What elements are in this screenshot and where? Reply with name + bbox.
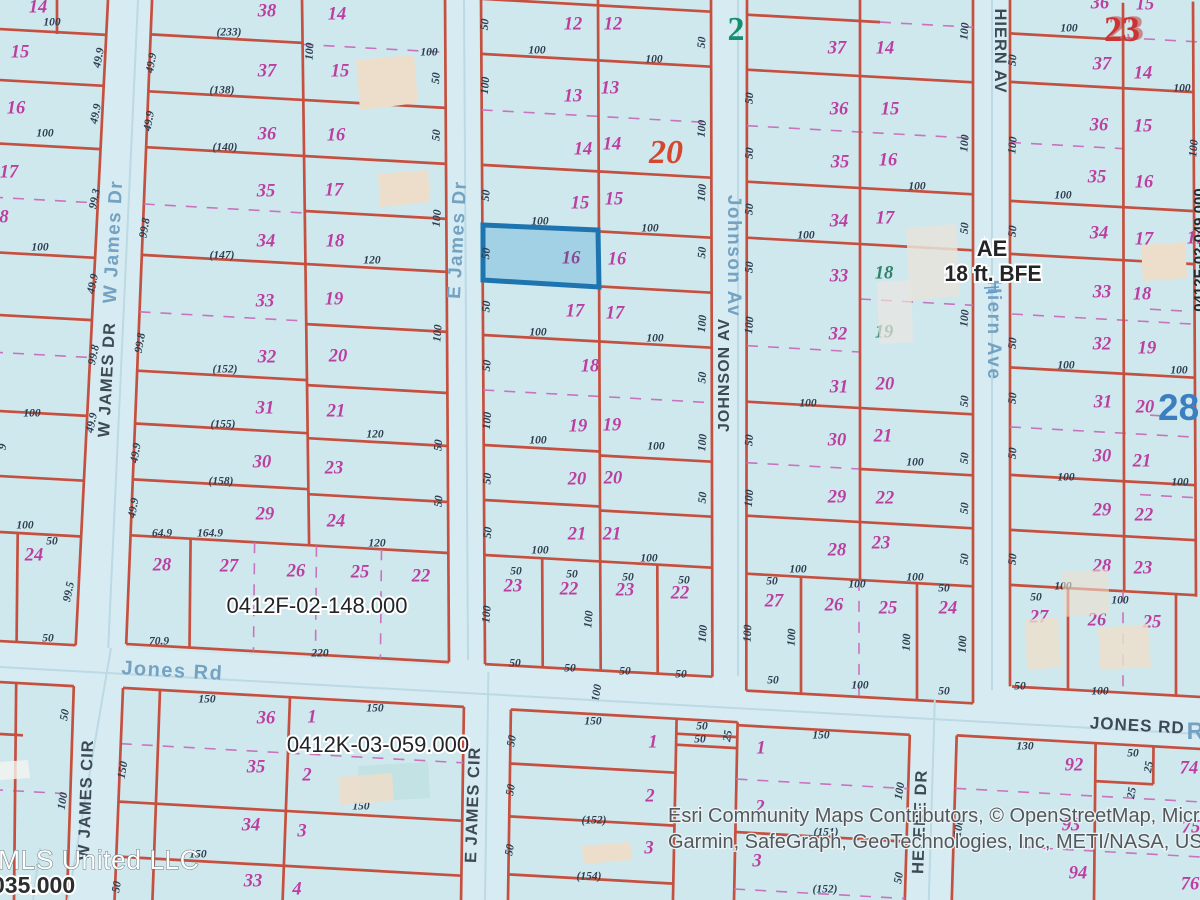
svg-text:100: 100 (1054, 190, 1072, 202)
svg-text:50: 50 (110, 880, 124, 894)
svg-text:100: 100 (697, 624, 710, 642)
svg-text:0412K-03-059.000: 0412K-03-059.000 (287, 732, 469, 757)
svg-text:21: 21 (1132, 452, 1152, 472)
svg-text:50: 50 (959, 553, 972, 566)
svg-text:100: 100 (645, 54, 663, 66)
svg-text:20: 20 (328, 347, 348, 367)
svg-text:36: 36 (1089, 116, 1109, 136)
svg-text:50: 50 (959, 452, 972, 465)
svg-text:24: 24 (326, 512, 346, 532)
svg-text:31: 31 (829, 378, 849, 398)
svg-text:35: 35 (1087, 168, 1107, 188)
svg-text:50: 50 (480, 247, 493, 260)
svg-text:92: 92 (1065, 756, 1084, 776)
svg-text:50: 50 (480, 300, 493, 313)
svg-text:100: 100 (1173, 83, 1191, 95)
svg-text:23: 23 (871, 534, 891, 554)
svg-text:20: 20 (603, 469, 623, 489)
svg-text:100: 100 (1171, 477, 1189, 489)
svg-text:50: 50 (622, 572, 634, 584)
svg-text:33: 33 (243, 872, 263, 892)
svg-text:23: 23 (324, 459, 344, 479)
svg-text:2: 2 (301, 766, 311, 786)
svg-text:1: 1 (756, 739, 765, 759)
svg-text:26: 26 (286, 562, 306, 582)
svg-text:34: 34 (829, 212, 849, 232)
svg-text:0412F-02-148.000: 0412F-02-148.000 (226, 593, 407, 618)
svg-text:13: 13 (601, 79, 620, 99)
svg-text:220: 220 (310, 648, 329, 660)
svg-text:35: 35 (256, 182, 276, 202)
svg-text:(155): (155) (211, 419, 236, 431)
svg-text:100: 100 (646, 333, 664, 345)
svg-text:50: 50 (564, 663, 576, 675)
svg-text:100: 100 (1091, 686, 1109, 698)
svg-text:(140): (140) (213, 142, 238, 154)
svg-text:30: 30 (1092, 447, 1112, 467)
svg-text:100: 100 (848, 579, 866, 591)
svg-text:150: 150 (366, 703, 384, 715)
svg-text:50: 50 (1007, 392, 1020, 405)
svg-text:150: 150 (584, 716, 602, 728)
svg-text:(233): (233) (217, 27, 242, 39)
svg-text:17: 17 (325, 181, 344, 201)
svg-text:1: 1 (307, 708, 316, 728)
svg-text:34: 34 (1089, 224, 1109, 244)
svg-text:13: 13 (564, 87, 583, 107)
svg-text:100: 100 (640, 553, 658, 565)
svg-text:27: 27 (219, 557, 239, 577)
svg-text:50: 50 (743, 434, 756, 447)
svg-text:(152): (152) (582, 815, 607, 827)
svg-text:100: 100 (696, 314, 709, 332)
svg-text:HIERN AV: HIERN AV (991, 8, 1009, 93)
svg-text:8: 8 (0, 208, 9, 228)
svg-text:50: 50 (480, 189, 493, 202)
svg-text:(152): (152) (213, 364, 238, 376)
svg-text:50: 50 (959, 502, 972, 515)
svg-text:100: 100 (480, 605, 493, 623)
svg-text:2: 2 (728, 11, 745, 48)
svg-text:120: 120 (363, 255, 381, 267)
svg-text:15: 15 (881, 100, 900, 120)
svg-text:25: 25 (350, 563, 370, 583)
svg-text:21: 21 (873, 427, 893, 447)
svg-text:14: 14 (328, 5, 347, 25)
svg-text:20: 20 (648, 134, 683, 171)
svg-text:100: 100 (957, 635, 970, 653)
svg-text:280: 280 (1158, 387, 1200, 428)
svg-text:16: 16 (7, 99, 26, 119)
svg-text:50: 50 (938, 686, 950, 698)
svg-text:50: 50 (678, 575, 690, 587)
svg-text:Garmin, SafeGraph, GeoTechnolo: Garmin, SafeGraph, GeoTechnologies, Inc,… (668, 831, 1200, 853)
svg-text:50: 50 (504, 783, 518, 797)
svg-text:17: 17 (606, 304, 625, 324)
svg-text:23: 23 (615, 581, 635, 601)
svg-text:100: 100 (481, 411, 494, 429)
svg-text:37: 37 (827, 39, 847, 59)
svg-text:36: 36 (256, 709, 276, 729)
svg-text:19: 19 (603, 416, 622, 436)
svg-text:Johnson Av: Johnson Av (723, 195, 744, 317)
svg-text:100: 100 (799, 398, 817, 410)
svg-text:64.9: 64.9 (152, 528, 172, 540)
svg-text:100: 100 (1057, 360, 1075, 372)
svg-text:14: 14 (1134, 64, 1153, 84)
svg-text:3: 3 (751, 852, 761, 872)
svg-text:15: 15 (1134, 117, 1153, 137)
svg-text:12: 12 (604, 15, 623, 35)
svg-text:50: 50 (1007, 447, 1020, 460)
svg-text:(158): (158) (209, 476, 234, 488)
svg-text:36: 36 (829, 100, 849, 120)
svg-text:15: 15 (571, 194, 590, 214)
svg-text:21: 21 (567, 525, 587, 545)
svg-text:31: 31 (255, 399, 275, 419)
svg-text:1: 1 (648, 733, 657, 753)
svg-text:100: 100 (431, 324, 444, 342)
svg-text:37: 37 (1092, 55, 1112, 75)
svg-text:23: 23 (503, 577, 523, 597)
svg-text:22: 22 (875, 489, 895, 509)
svg-text:100: 100 (786, 628, 799, 646)
svg-text:35: 35 (246, 758, 266, 778)
svg-text:33: 33 (829, 267, 849, 287)
svg-text:50: 50 (743, 203, 756, 216)
svg-text:35: 35 (830, 153, 850, 173)
svg-text:50: 50 (481, 359, 494, 372)
svg-text:18: 18 (875, 264, 894, 284)
svg-text:50: 50 (1007, 337, 1020, 350)
svg-text:50: 50 (1014, 681, 1026, 693)
svg-text:26: 26 (824, 596, 844, 616)
svg-text:28: 28 (827, 541, 847, 561)
svg-text:50: 50 (479, 18, 492, 31)
svg-text:100: 100 (958, 134, 971, 152)
svg-text:50: 50 (482, 526, 495, 539)
svg-text:50: 50 (503, 843, 517, 857)
svg-text:50: 50 (938, 583, 950, 595)
svg-text:34: 34 (241, 816, 261, 836)
svg-text:20: 20 (567, 470, 587, 490)
svg-text:(147): (147) (210, 250, 235, 262)
svg-text:100: 100 (531, 545, 549, 557)
svg-text:50: 50 (432, 439, 445, 452)
svg-text:100: 100 (304, 42, 317, 60)
svg-text:15: 15 (11, 43, 30, 63)
svg-text:100: 100 (743, 489, 756, 507)
svg-text:100: 100 (23, 408, 41, 420)
svg-text:94: 94 (1069, 864, 1088, 884)
svg-text:100: 100 (696, 183, 709, 201)
svg-text:100: 100 (696, 433, 709, 451)
svg-text:150: 150 (812, 730, 830, 742)
svg-text:120: 120 (366, 429, 384, 441)
svg-text:3: 3 (643, 839, 653, 859)
svg-text:33: 33 (255, 292, 275, 312)
svg-text:38: 38 (257, 2, 277, 22)
svg-text:(154): (154) (577, 871, 602, 883)
svg-text:(152): (152) (813, 884, 838, 896)
svg-text:120: 120 (368, 538, 386, 550)
svg-text:23: 23 (1104, 9, 1140, 49)
svg-text:100: 100 (1170, 365, 1188, 377)
svg-text:100: 100 (16, 520, 34, 532)
svg-text:70.9: 70.9 (149, 636, 169, 648)
svg-text:15: 15 (605, 190, 624, 210)
svg-text:23: 23 (1133, 559, 1153, 579)
svg-text:164.9: 164.9 (197, 528, 223, 540)
svg-text:50: 50 (1127, 748, 1139, 760)
svg-text:100: 100 (958, 22, 971, 40)
svg-text:50: 50 (46, 536, 58, 548)
svg-text:50: 50 (1007, 553, 1020, 566)
svg-text:50: 50 (697, 491, 710, 504)
svg-text:50: 50 (696, 36, 709, 49)
svg-text:31: 31 (1093, 393, 1113, 413)
svg-text:100: 100 (420, 47, 438, 59)
svg-text:0412F-02-049.000: 0412F-02-049.000 (1191, 188, 1200, 311)
svg-text:29: 29 (255, 505, 275, 525)
svg-text:14: 14 (574, 140, 593, 160)
svg-text:14: 14 (603, 135, 622, 155)
svg-text:20: 20 (875, 375, 895, 395)
svg-text:22: 22 (559, 580, 579, 600)
svg-text:19: 19 (1138, 339, 1157, 359)
svg-text:50: 50 (58, 708, 72, 722)
svg-text:4: 4 (291, 880, 301, 900)
svg-text:25: 25 (878, 599, 898, 619)
svg-text:50: 50 (696, 371, 709, 384)
svg-text:100: 100 (1060, 23, 1078, 35)
svg-text:24: 24 (938, 599, 958, 619)
svg-text:100: 100 (906, 457, 924, 469)
svg-text:50: 50 (743, 147, 756, 160)
svg-text:100: 100 (742, 624, 755, 642)
svg-text:17: 17 (876, 209, 895, 229)
svg-text:18 ft. BFE: 18 ft. BFE (945, 261, 1042, 286)
svg-text:50: 50 (743, 261, 756, 274)
svg-text:100: 100 (743, 316, 756, 334)
svg-text:32: 32 (257, 348, 277, 368)
svg-text:100: 100 (529, 435, 547, 447)
svg-text:21: 21 (602, 525, 622, 545)
svg-text:50: 50 (1007, 225, 1020, 238)
svg-text:130: 130 (1016, 741, 1034, 753)
svg-text:035.000: 035.000 (0, 872, 75, 898)
svg-text:50: 50 (510, 565, 522, 577)
svg-text:AE: AE (977, 236, 1008, 261)
svg-text:22: 22 (411, 567, 431, 587)
svg-text:MLS United LLC: MLS United LLC (0, 845, 199, 875)
svg-text:R: R (1187, 718, 1200, 745)
svg-text:14: 14 (29, 0, 48, 18)
svg-text:17: 17 (566, 302, 585, 322)
svg-text:50: 50 (766, 576, 778, 588)
svg-text:21: 21 (326, 402, 346, 422)
svg-text:50: 50 (481, 472, 494, 485)
svg-text:28: 28 (152, 556, 172, 576)
svg-text:18: 18 (581, 357, 600, 377)
svg-text:100: 100 (647, 441, 665, 453)
svg-text:24: 24 (24, 546, 44, 566)
svg-text:25: 25 (721, 729, 735, 744)
svg-text:100: 100 (696, 119, 709, 137)
svg-text:150: 150 (198, 694, 216, 706)
svg-text:100: 100 (1057, 472, 1075, 484)
svg-text:50: 50 (675, 669, 687, 681)
svg-text:100: 100 (1187, 139, 1200, 157)
svg-text:14: 14 (876, 39, 895, 59)
svg-text:100: 100 (797, 230, 815, 242)
svg-text:100: 100 (958, 309, 971, 327)
svg-text:27: 27 (764, 592, 784, 612)
svg-text:50: 50 (892, 871, 906, 885)
svg-text:Esri Community Maps Contributo: Esri Community Maps Contributors, © Open… (668, 805, 1200, 827)
svg-text:3: 3 (296, 822, 306, 842)
svg-text:50: 50 (433, 495, 446, 508)
svg-text:Hiern Ave: Hiern Ave (983, 280, 1004, 381)
svg-text:100: 100 (531, 216, 549, 228)
svg-text:22: 22 (1134, 506, 1154, 526)
svg-text:100: 100 (641, 223, 659, 235)
svg-text:30: 30 (827, 431, 847, 451)
svg-text:19: 19 (325, 290, 344, 310)
svg-text:50: 50 (566, 568, 578, 580)
svg-text:100: 100 (31, 242, 49, 254)
svg-text:18: 18 (326, 232, 345, 252)
svg-text:100: 100 (36, 128, 54, 140)
svg-text:50: 50 (430, 129, 443, 142)
svg-text:50: 50 (509, 658, 521, 670)
svg-text:16: 16 (562, 249, 581, 269)
svg-text:36: 36 (257, 125, 277, 145)
svg-text:29: 29 (827, 488, 847, 508)
svg-text:100: 100 (582, 610, 595, 628)
svg-text:25: 25 (1142, 760, 1156, 775)
svg-text:32: 32 (828, 325, 848, 345)
svg-text:100: 100 (901, 633, 914, 651)
svg-text:19: 19 (569, 417, 588, 437)
svg-text:50: 50 (505, 734, 519, 748)
svg-text:50: 50 (696, 721, 708, 733)
svg-text:100: 100 (851, 680, 869, 692)
svg-text:25: 25 (1125, 786, 1139, 801)
svg-text:29: 29 (1092, 501, 1112, 521)
svg-text:50: 50 (696, 246, 709, 259)
svg-text:17: 17 (0, 163, 19, 183)
svg-text:12: 12 (564, 15, 583, 35)
svg-text:34: 34 (256, 232, 276, 252)
svg-text:50: 50 (959, 222, 972, 235)
svg-text:50: 50 (767, 675, 779, 687)
svg-text:50: 50 (743, 92, 756, 105)
svg-text:18: 18 (1133, 285, 1152, 305)
svg-text:20: 20 (1135, 398, 1155, 418)
svg-text:30: 30 (252, 453, 272, 473)
svg-text:37: 37 (257, 62, 277, 82)
svg-text:50: 50 (42, 633, 54, 645)
svg-text:16: 16 (608, 250, 627, 270)
svg-text:32: 32 (1092, 335, 1112, 355)
svg-text:16: 16 (327, 126, 346, 146)
svg-text:15: 15 (331, 62, 350, 82)
svg-text:JOHNSON AV: JOHNSON AV (716, 318, 733, 432)
svg-text:100: 100 (528, 45, 546, 57)
svg-text:50: 50 (959, 395, 972, 408)
svg-text:2: 2 (644, 787, 654, 807)
svg-text:50: 50 (694, 734, 706, 746)
svg-text:33: 33 (1092, 283, 1112, 303)
svg-text:50: 50 (619, 666, 631, 678)
svg-text:100: 100 (1006, 136, 1019, 154)
svg-text:50: 50 (1030, 592, 1042, 604)
svg-text:16: 16 (879, 151, 898, 171)
svg-text:100: 100 (908, 181, 926, 193)
svg-text:74: 74 (1180, 759, 1199, 779)
svg-text:100: 100 (1111, 595, 1129, 607)
svg-text:100: 100 (479, 76, 492, 94)
svg-text:50: 50 (430, 72, 443, 85)
svg-text:100: 100 (906, 572, 924, 584)
svg-text:100: 100 (431, 209, 444, 227)
svg-text:100: 100 (529, 327, 547, 339)
svg-text:100: 100 (789, 564, 807, 576)
svg-text:100: 100 (43, 17, 61, 29)
svg-text:76: 76 (1181, 875, 1200, 895)
svg-text:(138): (138) (210, 85, 235, 97)
svg-text:16: 16 (1135, 173, 1154, 193)
